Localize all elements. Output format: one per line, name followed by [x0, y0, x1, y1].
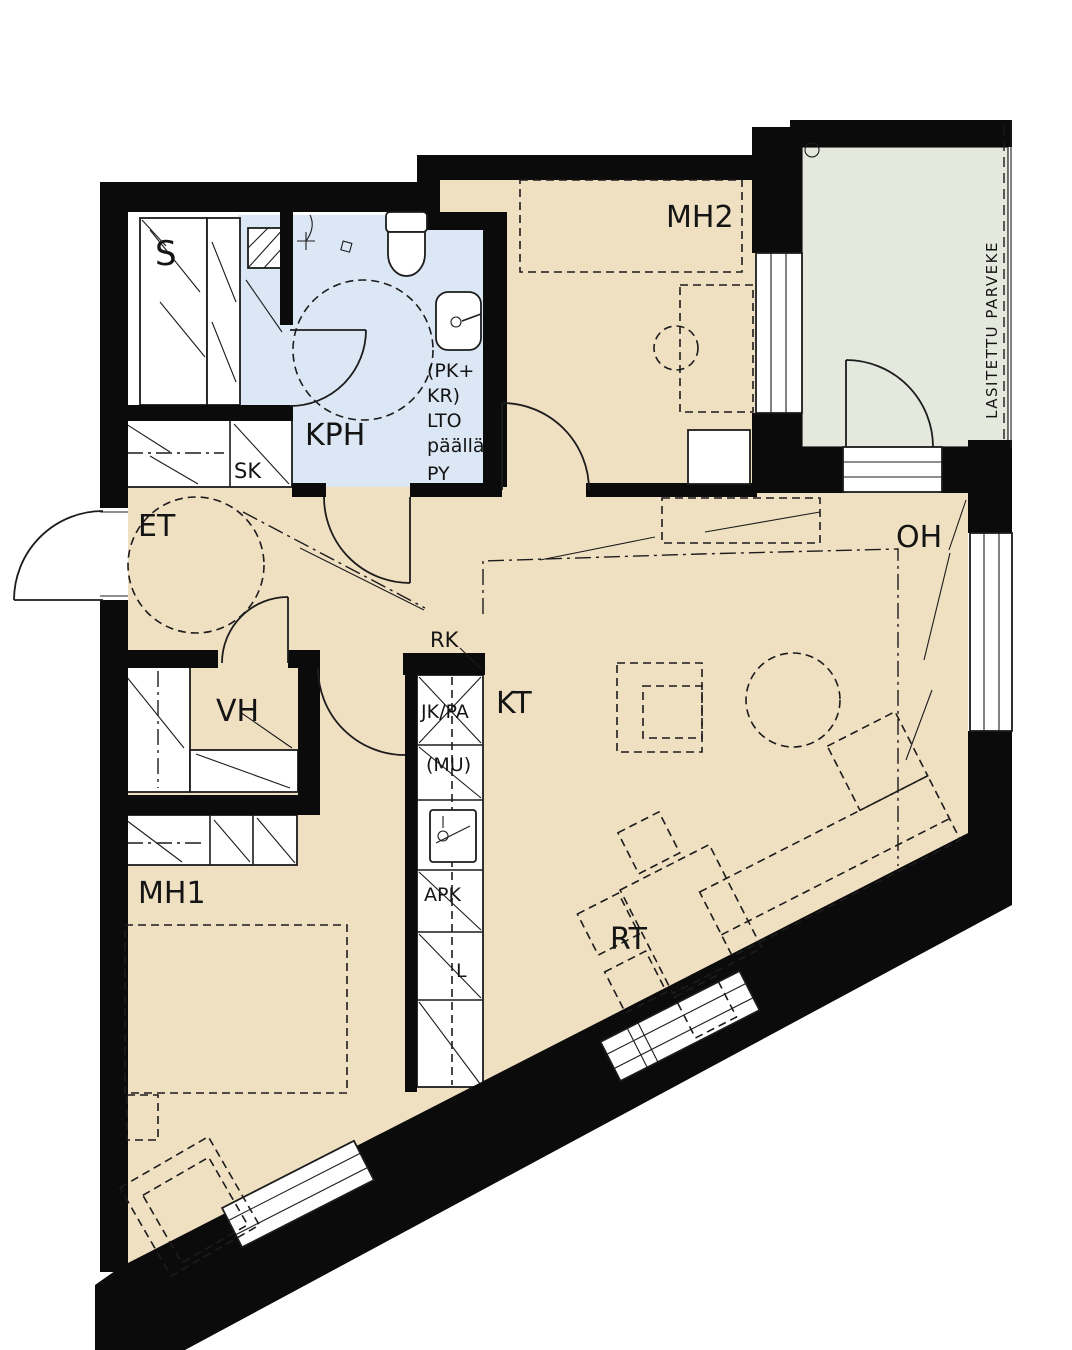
sauna-stove [248, 228, 284, 268]
room-label-sauna: S [155, 234, 177, 274]
label-kr: KR) [427, 385, 460, 407]
bathroom-sink [436, 292, 481, 350]
label-apk: APK [424, 884, 461, 906]
kitchen-sink [430, 810, 476, 862]
balcony-door-sill [843, 447, 942, 492]
room-label-sk: SK [234, 459, 262, 483]
mh1-wardrobes [122, 815, 297, 865]
mh2-balcony-window [756, 253, 802, 413]
room-label-et: ET [138, 509, 176, 544]
label-mu: (MU) [426, 754, 471, 776]
kitchen-cabinets [417, 675, 483, 1087]
entrance-threshold [100, 508, 128, 600]
room-label-balcony: LASITETTU PARVEKE [983, 241, 1001, 419]
label-l: L [456, 960, 467, 982]
room-label-oh: OH [896, 520, 942, 555]
balcony-floor [802, 147, 1008, 447]
oh-window [970, 533, 1012, 731]
room-label-rt: RT [610, 922, 648, 957]
label-jk-pa: JK/PA [420, 701, 469, 723]
entrance-door [14, 511, 103, 600]
room-label-vh: VH [216, 694, 259, 729]
room-label-kt: KT [496, 686, 532, 721]
room-label-mh2: MH2 [666, 200, 734, 235]
label-py: PY [427, 463, 450, 485]
floor-plan-page: S KPH SK MH2 ET OH VH KT MH1 RT RK JK/PA… [0, 0, 1072, 1350]
floor-plan-svg: S KPH SK MH2 ET OH VH KT MH1 RT RK JK/PA… [0, 0, 1072, 1350]
label-rk: RK [430, 628, 460, 652]
sk-closet-row [122, 420, 292, 487]
label-pk: (PK+ [427, 360, 474, 382]
label-lto: LTO [427, 410, 462, 432]
sauna-bench [207, 218, 240, 405]
mh2-duct-box [688, 430, 750, 484]
toilet [386, 212, 427, 276]
label-paalla: päällä [427, 435, 485, 457]
room-label-mh1: MH1 [138, 876, 206, 911]
room-label-bathroom: KPH [305, 418, 365, 453]
